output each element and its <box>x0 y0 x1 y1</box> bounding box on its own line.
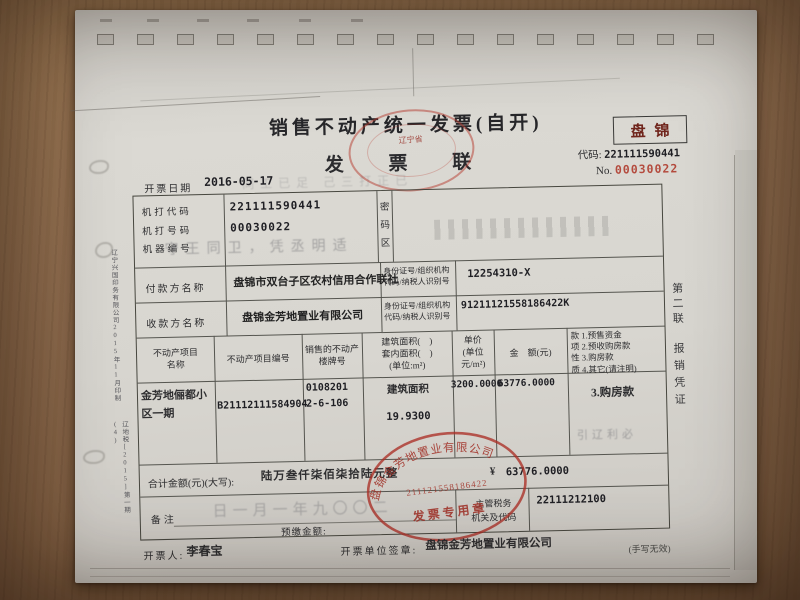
col-header-project-no: 不动产项目编号 <box>214 351 302 366</box>
invoice-code-line: 代码: 221111590441 <box>577 145 680 162</box>
cell-area-value: 19.9300 <box>366 410 450 424</box>
tax-authority-code: 22111212100 <box>536 493 606 507</box>
ghost-imprint: 引辽利必 <box>577 425 637 442</box>
cell-payment-nature: 3.购房款 <box>591 383 634 400</box>
print-approval-vertical: 辽地税[2015]第一期(4) <box>112 421 131 516</box>
seal-caption: 发票专用章 <box>411 500 488 525</box>
ghost-imprint: 守王同卫，凭丞明适 <box>164 235 353 259</box>
payer-id: 12254310-X <box>467 267 530 280</box>
photo-of-invoice-on-desk: 销售不动产统一发票(自开) 发 票 联 辽宁省 盘锦 代码: 221111590… <box>0 0 800 600</box>
invoice-sheet: 销售不动产统一发票(自开) 发 票 联 辽宁省 盘锦 代码: 221111590… <box>75 10 757 583</box>
col-header-unit-price: 单价 (单位 元/m²) <box>452 334 495 371</box>
printed-invoice-content: 销售不动产统一发票(自开) 发 票 联 辽宁省 盘锦 代码: 221111590… <box>68 0 763 583</box>
machine-printed-number: 00030022 <box>230 220 291 234</box>
col-header-building-no: 销售的不动产 楼牌号 <box>302 343 363 369</box>
password-zone-label: 密 码 区 <box>379 199 392 253</box>
drawer-name: 李春宝 <box>186 542 222 560</box>
code-label: 代码: <box>578 150 602 162</box>
payee-name: 盘锦金芳地置业有限公司 <box>242 306 363 325</box>
handwriting-invalid-note: (手写无效) <box>628 542 670 556</box>
payer-name: 盘锦市双台子区农村信用合作联社 <box>233 271 398 291</box>
payer-label: 付款方名称 <box>145 279 205 295</box>
issuer-label: 开票单位签章: <box>340 541 417 558</box>
prepaid-amount-label: 预缴金额: <box>281 523 327 538</box>
no-value: 00030022 <box>615 161 679 176</box>
code-value: 221111590441 <box>604 147 680 161</box>
cell-amount: 63776.0000 <box>498 377 555 389</box>
remark-label: 备注 <box>151 511 177 527</box>
cell-unit-price: 3200.0000 <box>451 378 503 390</box>
copy-use-vertical: 报销凭证 <box>670 342 688 410</box>
payer-id-label: 身份证号/组织机构 代码/纳税人识别号 <box>383 265 450 288</box>
invoice-number-line: No. 00030022 <box>596 161 679 177</box>
no-label: No. <box>596 165 612 177</box>
table-line <box>567 328 571 455</box>
region-box: 盘锦 <box>613 115 688 145</box>
paper-fold-line <box>412 48 414 96</box>
region-name: 盘锦 <box>621 119 678 141</box>
col-header-payment-nature: 款 1.预售资金 项 2.预收购房款 性 3.购房款 质 4.其它(请注明) <box>571 329 666 376</box>
seal-number: 211121558186422 <box>406 477 488 497</box>
payee-label: 收款方名称 <box>146 314 206 330</box>
oversight-seal-text: 辽宁省 <box>398 133 423 145</box>
password-zone-ghost <box>434 216 614 240</box>
cell-area-type: 建筑面积 <box>366 381 450 398</box>
printer-info-vertical: 辽宁兴国印务有限公司2015年11月印制 <box>108 249 122 414</box>
col-header-area: 建筑面积( ) 套内面积( ) (单位:m²) <box>362 334 453 372</box>
machine-printed-code: 221111590441 <box>230 198 322 213</box>
issuer-name: 盘锦金芳地置业有限公司 <box>425 534 552 553</box>
cell-project-name: 金芳地俪都小 区一期 <box>141 387 217 424</box>
col-header-project-name: 不动产项目 名称 <box>137 346 215 372</box>
paper-crease <box>140 78 620 102</box>
col-header-amount: 金 额(元) <box>494 345 567 360</box>
drawer-label: 开票人: <box>143 547 184 563</box>
payee-id-label: 身份证号/组织机构 代码/纳税人识别号 <box>384 300 451 323</box>
total-label: 合计金额(元)(大写): <box>148 473 234 490</box>
cell-building-no: 0108201 2-6-106 <box>306 380 349 412</box>
payee-id: 91211121558186422K <box>461 298 570 311</box>
cell-project-no: B21112111584904 <box>217 399 308 412</box>
copy-number-vertical: 第二联 <box>669 282 686 327</box>
issue-date-label: 开票日期 <box>144 179 192 195</box>
